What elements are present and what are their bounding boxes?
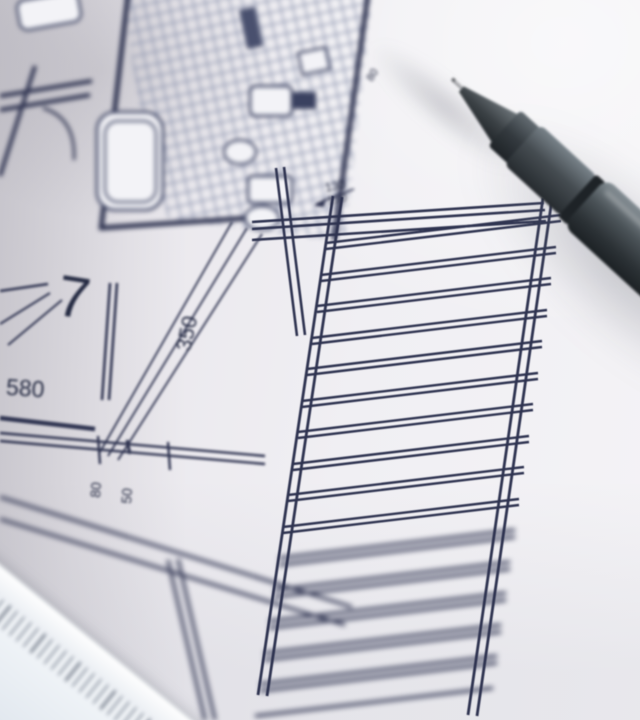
dim-80-wall-label: 80 xyxy=(87,481,104,498)
room-number-label: 7 xyxy=(53,263,95,332)
photograph: 7 580 350 80 50 130 150 80 xyxy=(0,0,640,720)
dim-50-wall-label: 50 xyxy=(118,487,135,504)
dim-580-label: 580 xyxy=(5,374,45,403)
blueprint-drawing: 7 580 350 80 50 130 150 80 xyxy=(0,0,640,720)
left-plan-drawing: 7 580 350 80 50 xyxy=(0,222,265,504)
